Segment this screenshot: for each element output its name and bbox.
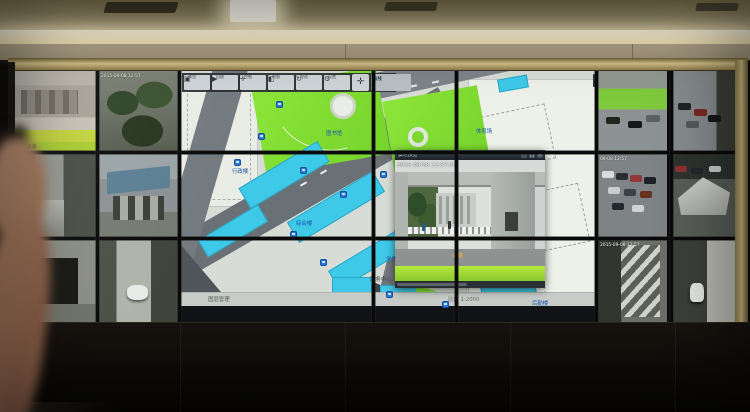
map-label: 后勤楼 [532,299,548,307]
photographer-hand [0,128,80,412]
panel-seam [675,322,676,412]
control-room-photo: 2015-09-08 12:5709-08 12:572015-09-08 12… [0,0,750,412]
camera-marker-icon[interactable] [340,191,347,198]
ceiling-vent [103,2,179,13]
toolbar-button-地图[interactable]: ◧地图 [268,75,294,90]
camera-status-legend: 在线离线 [371,74,411,91]
camera-marker-icon[interactable] [442,301,449,308]
map-roundabout [408,127,428,147]
wall-bezel [372,71,375,322]
video-wall-frame-right [735,60,748,332]
recessed-light [230,0,276,22]
camera-tile[interactable] [99,240,178,322]
status-right-text: 比例 1:2000 [448,295,480,303]
map-toolbar: ▣预览▶回放✛控制◧地图↻轮巡⚙设置✛在线离线 [182,73,396,92]
toolbar-button-设置[interactable]: ⚙设置 [324,75,350,90]
camera-tile[interactable]: 09-08 12:57 [598,154,667,237]
popup-video-feed[interactable]: 2015-09-08 12:57:00 西大门入口摄像机01录像中 [395,160,545,281]
gate-road [395,249,545,266]
camera-tile[interactable] [673,154,735,237]
wall-bezel [15,151,735,154]
gate-lawn [395,266,545,281]
wall-bezel [455,71,458,322]
camera-tile[interactable] [99,154,178,237]
camera-tile[interactable] [598,71,667,151]
panel-seam [510,322,511,412]
toolbar-button-回放[interactable]: ▶回放 [212,75,238,90]
toolbar-label: 设置 [328,75,336,79]
pan-dpad-control[interactable]: ✛ [352,74,369,91]
toolbar-label: 地图 [272,75,280,79]
camera-tile[interactable]: 2015-09-08 12:57 [99,71,178,151]
map-bottom-strip [180,306,597,322]
map-label: 行政楼 [232,167,248,175]
video-wall-lower-panels [0,322,750,412]
toolbar-label: 预览 [188,75,196,79]
ceiling-vent [695,3,738,11]
gate-left-pillar [395,172,408,258]
status-left-text: 图层管理 [208,295,230,303]
camera-marker-icon[interactable] [380,171,387,178]
panel-seam [180,322,181,412]
video-wall: 2015-09-08 12:5709-08 12:572015-09-08 12… [15,71,735,322]
map-label: 图书馆 [326,129,342,137]
wall-bezel [670,71,673,322]
map-label: 综合楼 [296,219,312,227]
camera-marker-icon[interactable] [276,101,283,108]
wall-bezel [178,71,181,322]
camera-marker-icon[interactable] [234,159,241,166]
pedestrian [422,223,425,231]
camera-tile[interactable]: 2015-09-08 12:57 [598,240,667,322]
pedestrian [448,221,451,229]
video-wall-frame-top [8,58,748,71]
camera-marker-icon[interactable] [386,291,393,298]
toolbar-button-预览[interactable]: ▣预览 [184,75,210,90]
ceiling-vent [384,2,438,11]
wall-bezel [15,237,735,240]
camera-marker-icon[interactable] [258,133,265,140]
panel-seam [345,322,346,412]
map-label: 体育场 [476,127,492,135]
camera-osd-timestamp: 2015-09-08 12:57 [101,73,141,78]
map-fountain [330,93,356,119]
camera-osd-timestamp: 2015-09-08 12:57 [600,242,640,247]
wall-bezel [595,71,598,322]
toolbar-label: 轮巡 [300,75,308,79]
cove-light-strip [0,30,750,45]
video-preview-window[interactable]: 实时预览 ─□× 2015-09-08 12:57:00 [395,150,545,288]
popup-scrollbar[interactable] [395,281,545,288]
wall-bezel [96,71,99,322]
forearm [0,209,60,412]
camera-tile[interactable] [673,240,735,322]
toolbar-button-轮巡[interactable]: ↻轮巡 [296,75,322,90]
toolbar-label: 控制 [244,75,252,79]
video-timestamp-osd: 2015-09-08 12:57:00 [397,162,456,168]
toolbar-button-控制[interactable]: ✛控制 [240,75,266,90]
gatehouse-window [505,212,518,231]
camera-marker-icon[interactable] [320,259,327,266]
camera-tile[interactable] [673,71,735,151]
camera-osd-timestamp: 09-08 12:57 [600,156,627,161]
toolbar-label: 回放 [216,75,224,79]
camera-marker-icon[interactable] [300,167,307,174]
